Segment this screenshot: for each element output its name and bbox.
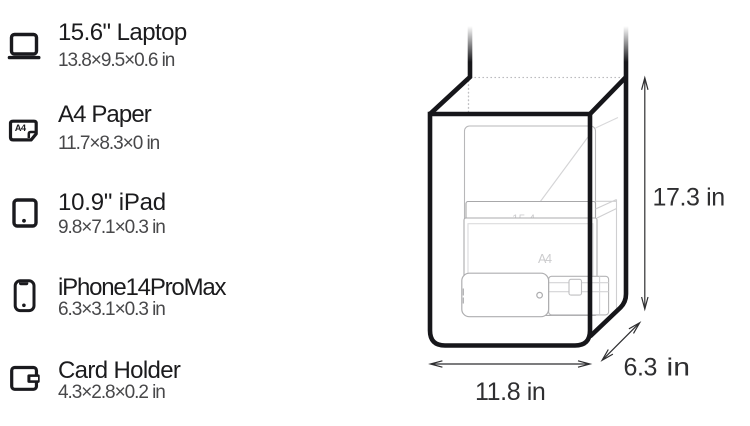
svg-text:A4: A4 [538, 252, 552, 266]
svg-text:17.3 in: 17.3 in [653, 184, 725, 212]
svg-text:6.3: 6.3 [624, 353, 658, 381]
svg-text:11.8 in: 11.8 in [475, 378, 545, 406]
svg-text:in: in [667, 353, 691, 381]
